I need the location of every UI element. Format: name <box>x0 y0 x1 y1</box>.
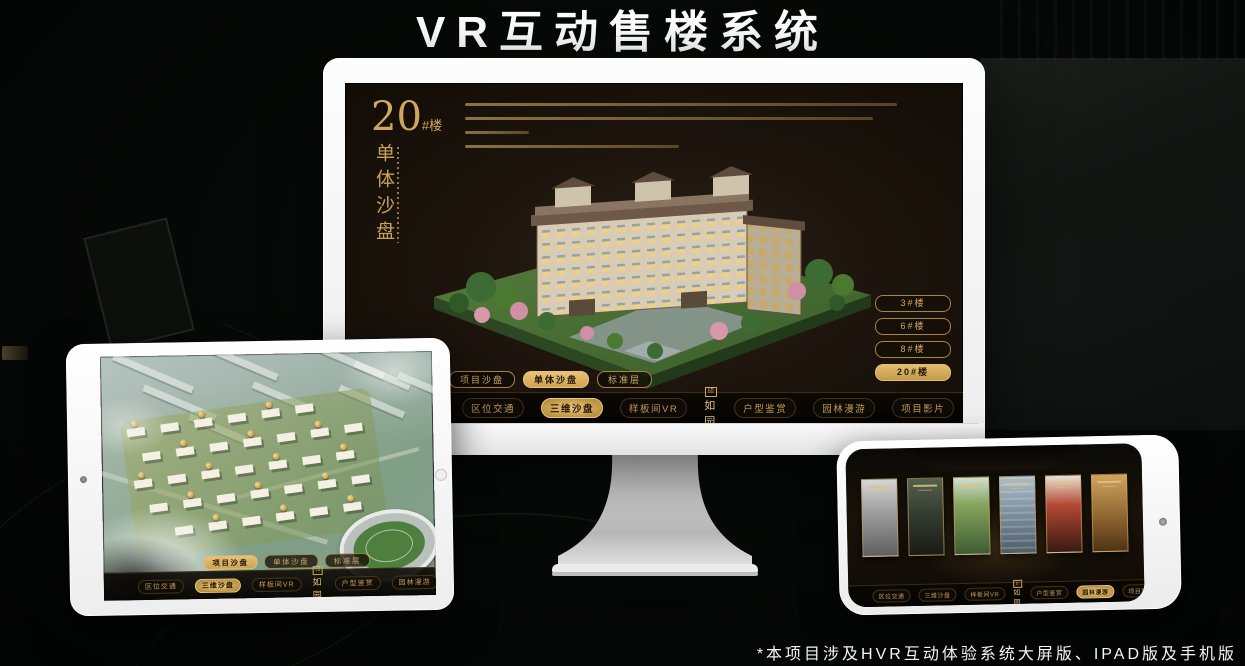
residential-building <box>201 469 220 479</box>
scene-panel[interactable] <box>907 477 945 556</box>
floor-button[interactable]: 20#楼 <box>875 364 951 381</box>
residential-building <box>343 502 362 512</box>
label-divider <box>397 147 399 243</box>
ipad-camera-icon <box>80 476 87 483</box>
scroll-handle-icon[interactable] <box>114 575 119 599</box>
residential-building <box>217 493 236 503</box>
residential-building <box>235 464 254 474</box>
residential-building <box>318 479 337 489</box>
nav-item[interactable]: 区位交通 <box>872 589 910 603</box>
logo-text: 如园 <box>312 575 323 601</box>
residential-building <box>277 432 296 442</box>
floor-button[interactable]: 6#楼 <box>875 318 951 335</box>
nav-item[interactable]: 项目影片 <box>892 398 954 418</box>
floor-button[interactable]: 3#楼 <box>875 295 951 312</box>
page: VR互动售楼系统 20#楼 单体沙盘 <box>0 0 1245 666</box>
building-marker-icon[interactable] <box>205 462 213 470</box>
residential-building <box>176 446 195 456</box>
submenu-button[interactable]: 单体沙盘 <box>523 371 589 388</box>
cloud <box>100 396 172 458</box>
residential-building <box>309 506 328 516</box>
background-gold-mark <box>2 346 28 360</box>
floor-button[interactable]: 8#楼 <box>875 341 951 358</box>
building-marker-icon[interactable] <box>254 481 262 489</box>
phone-camera-icon <box>1159 518 1167 526</box>
monitor-stand <box>540 452 770 604</box>
residential-building <box>227 413 246 423</box>
residential-building <box>302 455 321 465</box>
logo-seal-icon: 印 <box>1013 579 1022 587</box>
cloud <box>340 351 437 407</box>
residential-building <box>209 442 228 452</box>
ipad-home-button[interactable] <box>435 469 447 481</box>
building-marker-icon[interactable] <box>279 504 287 512</box>
residential-building <box>310 427 329 437</box>
nav-item[interactable]: 样板间VR <box>620 398 687 418</box>
residential-building <box>268 459 287 469</box>
residential-building <box>261 408 280 418</box>
scene-panel[interactable] <box>861 478 899 557</box>
nav-item[interactable]: 园林漫游 <box>813 398 875 418</box>
ipad-screen: 项目沙盘单体沙盘标准层 区位交通三维沙盘样板间VR印如园户型鉴赏园林漫游项目影片 <box>100 351 436 601</box>
logo-text: 如园 <box>1013 587 1022 607</box>
logo-seal-icon: 印 <box>313 566 323 575</box>
footnote: *本项目涉及HVR互动体验系统大屏版、IPAD版及手机版 <box>757 640 1237 664</box>
building-name-vertical: 单体沙盘 <box>371 143 398 263</box>
nav-item[interactable]: 区位交通 <box>462 398 524 418</box>
brand-logo[interactable]: 印如园 <box>704 387 717 423</box>
building-marker-icon[interactable] <box>272 452 280 460</box>
nav-item[interactable]: 三维沙盘 <box>541 398 603 418</box>
building-marker-icon[interactable] <box>179 439 187 447</box>
residential-building <box>336 450 355 460</box>
scene-panel[interactable] <box>1091 474 1129 553</box>
brand-logo[interactable]: 印如园 <box>1013 579 1023 607</box>
background-photo <box>980 58 1245 430</box>
building-marker-icon[interactable] <box>187 491 195 499</box>
residential-building <box>134 478 153 488</box>
building-3d-render[interactable] <box>419 145 889 395</box>
submenu-button[interactable]: 项目沙盘 <box>203 555 257 570</box>
building-marker-icon[interactable] <box>347 494 355 502</box>
nav-item[interactable]: 项目影片 <box>1122 584 1144 598</box>
phone-screen: 区位交通三维沙盘样板间VR印如园户型鉴赏园林漫游项目影片 <box>845 443 1144 607</box>
building-marker-icon[interactable] <box>265 401 273 409</box>
residential-building <box>351 474 370 484</box>
residential-building <box>276 511 295 521</box>
residential-building <box>167 474 186 484</box>
logo-text: 如园 <box>704 397 717 423</box>
residential-building <box>250 488 269 498</box>
building-marker-icon[interactable] <box>138 471 146 479</box>
logo-seal-icon: 印 <box>705 387 717 397</box>
submenu-button[interactable]: 标准层 <box>597 371 652 388</box>
courtyard-eave-silhouette <box>909 445 1079 473</box>
scene-panel[interactable] <box>953 476 991 555</box>
ipad: 项目沙盘单体沙盘标准层 区位交通三维沙盘样板间VR印如园户型鉴赏园林漫游项目影片 <box>66 338 455 617</box>
nav-item[interactable]: 户型鉴赏 <box>734 398 796 418</box>
residential-building <box>284 484 303 494</box>
phone-navbar: 区位交通三维沙盘样板间VR印如园户型鉴赏园林漫游项目影片 <box>848 579 1144 607</box>
residential-building <box>194 417 213 427</box>
ipad-submenu: 项目沙盘单体沙盘标准层 <box>203 553 370 570</box>
background-sign <box>83 217 195 350</box>
residential-building <box>242 516 261 526</box>
nav-item[interactable]: 户型鉴赏 <box>1030 586 1068 600</box>
nav-item[interactable]: 样板间VR <box>964 587 1005 601</box>
page-title: VR互动售楼系统 <box>0 0 1245 60</box>
building-marker-icon[interactable] <box>314 420 322 428</box>
submenu-button[interactable]: 标准层 <box>325 553 370 568</box>
building-marker-icon[interactable] <box>321 472 329 480</box>
floor-button-group: 3#楼6#楼8#楼20#楼 <box>875 295 951 381</box>
nav-item[interactable]: 区位交通 <box>138 579 184 594</box>
residential-building <box>243 437 262 447</box>
ipad-navbar: 区位交通三维沙盘样板间VR印如园户型鉴赏园林漫游项目影片 <box>104 567 436 601</box>
nav-item[interactable]: 三维沙盘 <box>918 588 956 602</box>
nav-item[interactable]: 户型鉴赏 <box>334 575 380 590</box>
brand-logo[interactable]: 印如园 <box>312 566 324 601</box>
nav-item[interactable]: 样板间VR <box>252 577 302 592</box>
scene-panel[interactable] <box>1045 474 1083 553</box>
nav-item[interactable]: 园林漫游 <box>1076 585 1114 599</box>
submenu-button[interactable]: 单体沙盘 <box>264 554 318 569</box>
nav-item[interactable]: 园林漫游 <box>391 574 436 589</box>
building-marker-icon[interactable] <box>247 430 255 438</box>
scene-gallery <box>846 473 1144 557</box>
nav-item[interactable]: 三维沙盘 <box>195 578 241 593</box>
residential-building <box>295 403 314 413</box>
building-number: 20 <box>371 94 422 140</box>
building-number-suffix: #楼 <box>422 118 442 133</box>
building-marker-icon[interactable] <box>340 443 348 451</box>
building-marker-icon[interactable] <box>198 410 206 418</box>
scene-panel[interactable] <box>999 475 1037 554</box>
scroll-handle-icon[interactable] <box>855 588 858 605</box>
submenu-button[interactable]: 项目沙盘 <box>449 371 515 388</box>
phone: 区位交通三维沙盘样板间VR印如园户型鉴赏园林漫游项目影片 <box>836 434 1182 615</box>
monitor-submenu: 项目沙盘单体沙盘标准层 <box>449 371 652 388</box>
residential-building <box>344 423 363 433</box>
